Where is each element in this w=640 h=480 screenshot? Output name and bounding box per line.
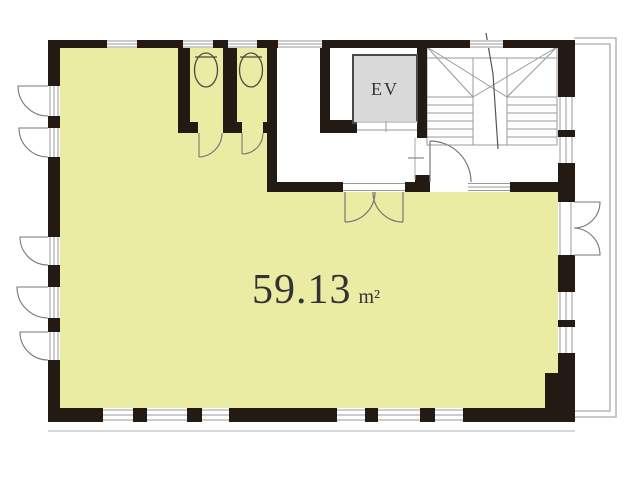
balcony-french-doors	[574, 202, 600, 255]
hall-window	[468, 182, 510, 192]
area-label: 59.13 m²	[226, 269, 406, 311]
elevator-label: EV	[353, 55, 417, 123]
floor-plan: 59.13 m² EV	[0, 0, 640, 480]
stair-break-line	[486, 33, 498, 149]
main-room-fill	[60, 48, 558, 408]
floor-plan-drawing	[0, 0, 640, 480]
casement-window-swings	[17, 86, 48, 360]
staircase	[427, 47, 557, 145]
area-value: 59.13	[252, 269, 352, 311]
area-unit: m²	[358, 287, 380, 307]
